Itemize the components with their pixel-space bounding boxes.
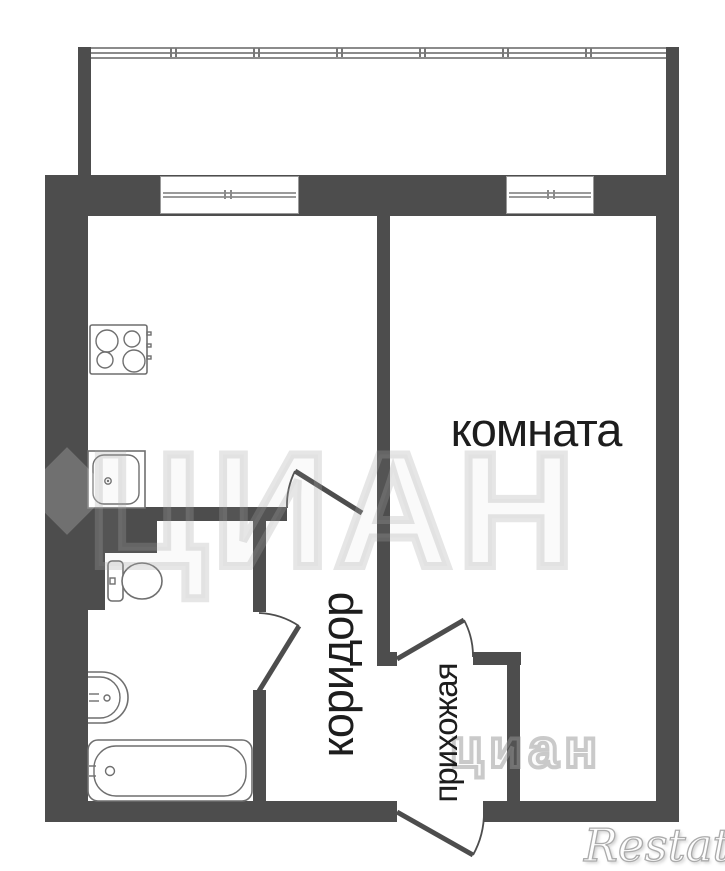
room-label: комната: [450, 406, 622, 456]
entrance-door: [397, 812, 484, 855]
watermark-cian-corner: циан: [450, 722, 603, 776]
bathroom-door: [259, 613, 299, 691]
hallway-label: прихожая: [429, 653, 463, 813]
stove-icon: [90, 325, 151, 374]
floor-plan: ЦИАН циан Restate комната коридор прихож…: [0, 0, 725, 871]
corridor-label: коридор: [315, 575, 361, 775]
bathtub-icon: [88, 740, 252, 801]
washbasin-icon: [88, 672, 128, 723]
watermark-restate: Restate: [584, 823, 725, 868]
